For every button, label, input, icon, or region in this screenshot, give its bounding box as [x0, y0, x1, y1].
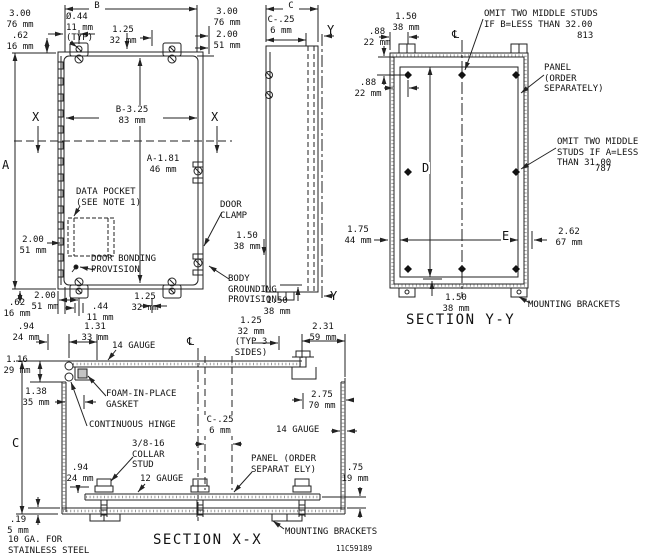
note-panel-order-xx: PANEL (ORDER SEPARAT ELY) — [251, 454, 316, 475]
collar-studs — [95, 479, 311, 517]
note-14-gauge-top: 14 GAUGE — [112, 341, 155, 352]
dim-a-label: A — [1, 159, 10, 171]
note-panel-order-yy: PANEL (ORDER SEPARATELY) — [544, 63, 604, 95]
dim-.75-xx: .75 19 mm — [337, 463, 373, 484]
dim-2.31-xx: 2.31 59 mm — [302, 322, 344, 343]
section-marker-y-bottom: Y — [330, 290, 337, 302]
centerline-symbol-yy: ℄ — [452, 29, 459, 40]
note-door-clamp: DOOR CLAMP — [220, 200, 247, 221]
xx-wall-stipple — [63, 364, 344, 512]
side-view-linework — [266, 5, 335, 301]
yy-wall-stipple — [393, 56, 526, 286]
dim-c-minus-.25-xx: C-.25 6 mm — [204, 415, 236, 436]
gasket-section — [78, 369, 87, 378]
dim-.88-a: .88 22 mm — [360, 27, 394, 48]
panel-outline — [400, 67, 518, 277]
dim-1.31-xx: 1.31 33 mm — [74, 322, 116, 343]
dim-2.00-left: 2.00 51 mm — [15, 235, 51, 256]
note-omit-studs-b-mm: 813 — [577, 31, 593, 42]
hinge-knuckle — [65, 373, 73, 381]
dim-d-label: D — [421, 162, 430, 174]
section-xx-title: SECTION X-X — [153, 533, 262, 547]
note-data-pocket: DATA POCKET (SEE NOTE 1) — [76, 187, 141, 208]
note-stainless-gauge: 10 GA. FOR STAINLESS STEEL — [8, 535, 89, 556]
dim-hole-dia-typ: Ø.44 11 mm (TYP) — [66, 12, 93, 44]
dim-1.25-top: 1.25 32 mm — [103, 25, 143, 46]
section-marker-y-top: Y — [327, 24, 334, 36]
section-marker-x-right: X — [211, 111, 218, 123]
dim-1.25-bottom: 1.25 32 mm — [126, 292, 164, 313]
drawing-number: 11C59189 — [336, 545, 372, 553]
section-marker-x-left: X — [32, 111, 39, 123]
note-omit-studs-a-mm: 787 — [595, 164, 611, 175]
yy-linework — [374, 19, 556, 303]
note-foam-gasket: FOAM-IN-PLACE GASKET — [106, 389, 176, 410]
dim-3.00-top-left: 3.00 76 mm — [0, 9, 40, 30]
centerline-symbol-xx: ℄ — [187, 336, 194, 347]
dim-1.38-xx: 1.38 35 mm — [18, 387, 54, 408]
dim-b-minus-3.25: B-3.25 83 mm — [101, 105, 163, 126]
note-omit-studs-b: OMIT TWO MIDDLE STUDS IF B=LESS THAN 32.… — [484, 9, 598, 30]
note-mounting-brackets-yy: MOUNTING BRACKETS — [528, 300, 620, 311]
dim-1.50-clamp: 1.50 38 mm — [229, 231, 265, 252]
note-mounting-brackets-xx: MOUNTING BRACKETS — [285, 527, 377, 538]
section-yy-title: SECTION Y-Y — [406, 313, 515, 327]
dim-b-label: B — [89, 1, 105, 12]
dim-2.00-top-right: 2.00 51 mm — [205, 30, 249, 51]
dim-2.00-bottom: 2.00 51 mm — [27, 291, 63, 312]
dim-1.16-xx: 1.16 29 mm — [0, 355, 34, 376]
dim-1.50-yy-bottom: 1.50 38 mm — [436, 293, 476, 314]
dim-.19-xx: .19 5 mm — [2, 515, 34, 536]
dim-c-label-xx: C — [11, 437, 20, 449]
dim-3.00-top-right: 3.00 76 mm — [205, 7, 249, 28]
engineering-drawing: B 3.00 76 mm .62 16 mm Ø.44 11 mm (TYP) … — [0, 0, 649, 556]
dim-1.50-side-bottom: 1.50 38 mm — [258, 296, 296, 317]
dim-.88-b: .88 22 mm — [350, 78, 386, 99]
dim-.94-xx-bottom: .94 24 mm — [62, 463, 98, 484]
note-continuous-hinge: CONTINUOUS HINGE — [89, 420, 176, 431]
dim-e-label: E — [501, 230, 510, 242]
dim-1.75-yy: 1.75 44 mm — [338, 225, 378, 246]
dim-a-minus-1.81: A-1.81 46 mm — [141, 154, 185, 175]
dim-.44-bottom: .44 11 mm — [82, 302, 118, 323]
dim-.62-top-left: .62 16 mm — [0, 31, 40, 52]
xx-mounting-brackets — [90, 514, 302, 521]
dim-c-label: C — [283, 1, 299, 12]
data-pocket-outline — [68, 218, 114, 256]
note-12-gauge: 12 GAUGE — [140, 474, 183, 485]
dim-c-minus-.25-top: C-.25 6 mm — [258, 15, 304, 36]
note-collar-stud: 3/8-16 COLLAR STUD — [132, 439, 165, 471]
dim-2.62-yy: 2.62 67 mm — [548, 227, 590, 248]
dim-.94-xx-top: .94 24 mm — [6, 322, 46, 343]
note-door-bonding: DOOR BONDING PROVISION — [91, 254, 156, 275]
dim-1.25-typ-3-sides: 1.25 32 mm (TYP 3 SIDES) — [228, 316, 274, 358]
hinge-knuckle — [65, 362, 73, 370]
dim-2.75-xx: 2.75 70 mm — [303, 390, 341, 411]
note-14-gauge-right: 14 GAUGE — [276, 425, 319, 436]
